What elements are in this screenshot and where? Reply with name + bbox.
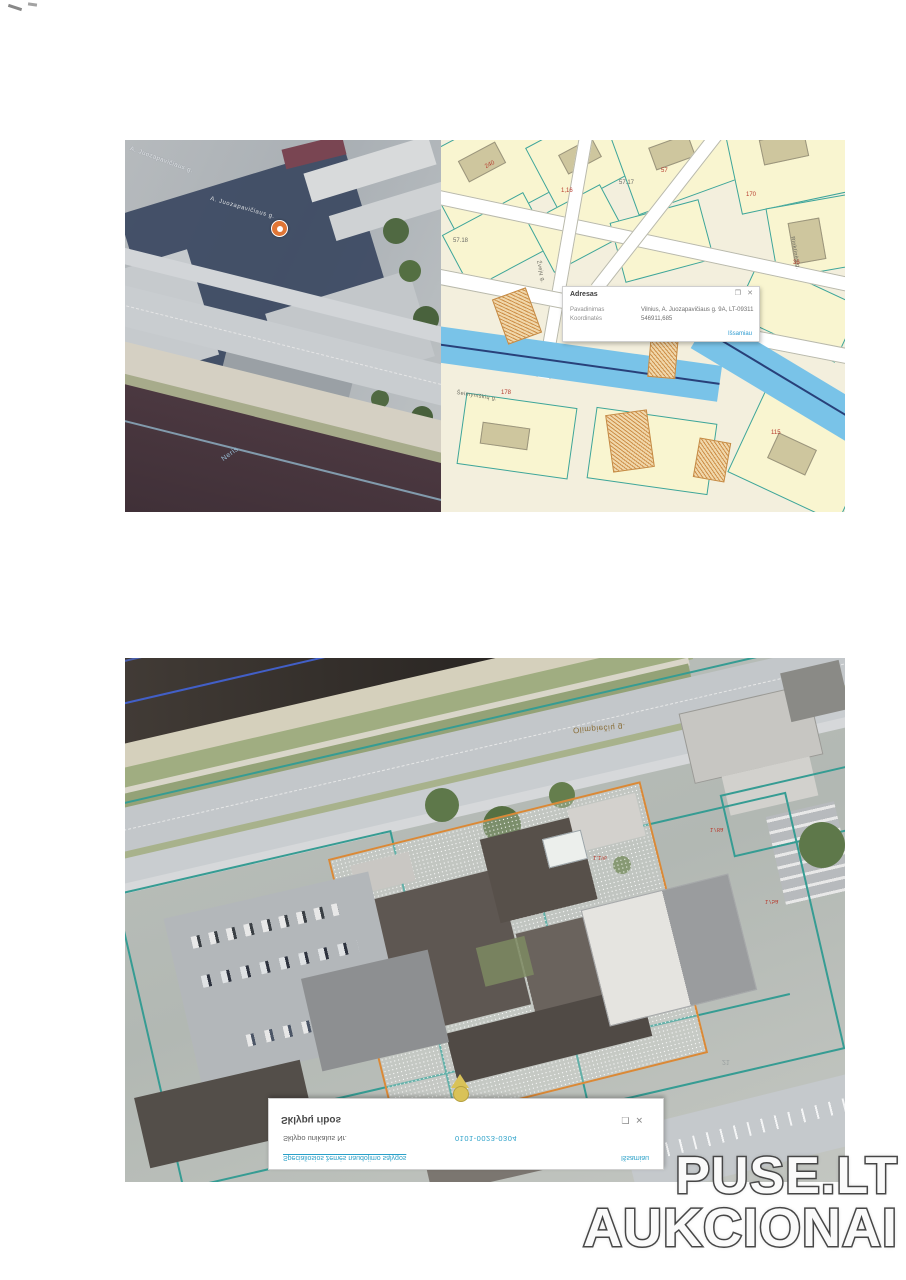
- parcel-number: 57: [661, 168, 668, 174]
- dock-icon[interactable]: ❐: [735, 290, 741, 298]
- field-value[interactable]: 0101-0023-0304: [455, 1134, 517, 1143]
- special-conditions-link[interactable]: Specialiosios žemės naudojimo sąlygos: [283, 1154, 406, 1161]
- close-icon[interactable]: ✕: [635, 1115, 649, 1125]
- field-label: Koordinatės: [570, 315, 602, 323]
- watermark-line1: PUSE.LT: [583, 1150, 898, 1202]
- map-figure-bottom: Olimpiečių g. 178a 1.1% 175a 21 Sklypų r…: [125, 658, 845, 1182]
- field-value: Vilnius, A. Juozapavičiaus g. 9A, LT-093…: [641, 306, 753, 314]
- watermark: PUSE.LT AUKCIONAI: [583, 1150, 898, 1254]
- satellite-map: A. Juozapavičiaus g. A. Juozapavičiaus g…: [125, 140, 441, 512]
- dock-icon[interactable]: ❐: [621, 1115, 635, 1125]
- elevation-label: 57.18: [453, 238, 468, 244]
- watermark-line2: AUKCIONAI: [583, 1202, 898, 1254]
- zoned-area-hatched: [605, 409, 655, 472]
- map-figure-top: A. Juozapavičiaus g. A. Juozapavičiaus g…: [125, 140, 845, 512]
- zoned-area-hatched: [693, 438, 731, 483]
- tree-cluster: [383, 218, 409, 244]
- parcel-label: 21: [722, 1058, 730, 1065]
- parcel-label: 1.1%: [593, 854, 607, 860]
- popup-title: Adresas: [570, 291, 598, 298]
- scanned-document-page: A. Juozapavičiaus g. A. Juozapavičiaus g…: [0, 0, 906, 1280]
- parcel-number: 1,16: [561, 188, 573, 194]
- street-label: A. Juozapavičiaus g.: [129, 146, 194, 175]
- elevation-label: 57.17: [619, 180, 634, 186]
- location-pin-icon: [271, 220, 288, 237]
- close-icon[interactable]: ✕: [747, 290, 753, 298]
- tree-cluster: [425, 788, 459, 822]
- parcel-number: 115: [771, 430, 781, 436]
- field-value: 546911,685: [641, 315, 672, 323]
- popup-title: Sklypų ribos: [281, 1114, 341, 1125]
- parcel-number: 170: [746, 192, 756, 198]
- parcel-label: 178a: [710, 826, 723, 832]
- field-label: Pavadinimas: [570, 306, 604, 314]
- parcel-number: 178: [501, 390, 511, 396]
- field-label: Sklypo unikalus Nr.: [283, 1134, 347, 1143]
- callout-pin-icon: [453, 1086, 469, 1102]
- scan-artifact: [8, 4, 22, 11]
- street-label: Žvejų g.: [535, 260, 546, 284]
- more-details-link[interactable]: Išsamiau: [728, 331, 752, 337]
- scan-artifact: [28, 2, 37, 6]
- parcel-label: 175a: [765, 898, 778, 904]
- window-controls[interactable]: ❐✕: [621, 1114, 649, 1125]
- adresas-popup: Adresas ❐ ✕ Pavadinimas Vilnius, A. Juoz…: [562, 286, 760, 342]
